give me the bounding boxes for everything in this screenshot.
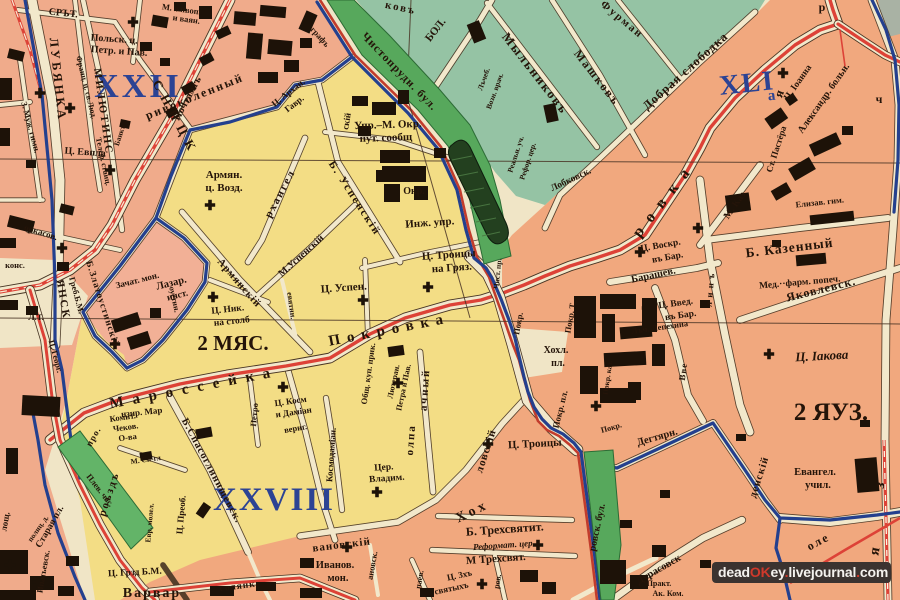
svg-text:2 МЯС.: 2 МЯС. [197, 331, 268, 355]
svg-text:Евангел.: Евангел. [794, 467, 836, 478]
svg-text:учил.: учил. [805, 480, 831, 491]
svg-text:Ак. Ком.: Ак. Ком. [652, 589, 683, 598]
svg-text:конс.: конс. [5, 260, 25, 270]
svg-text:Цер.: Цер. [374, 462, 394, 473]
svg-text:Варвар: Варвар [123, 586, 181, 600]
svg-text:Л.Т.: Л.Т. [28, 312, 43, 322]
svg-text:пут. сообщ: пут. сообщ [359, 131, 413, 145]
svg-text:мон.: мон. [328, 573, 349, 584]
svg-text:Практ.: Практ. [647, 579, 672, 588]
svg-text:Окр.: Окр. [403, 186, 425, 197]
svg-text:ч: ч [876, 92, 883, 106]
svg-text:deadOKey.livejournal.com: deadOKey.livejournal.com [718, 564, 888, 580]
svg-text:ц. Возд.: ц. Возд. [205, 182, 242, 194]
svg-text:Хохл.: Хохл. [544, 345, 569, 356]
svg-text:олпа: олпа [404, 424, 418, 456]
svg-text:р: р [819, 0, 826, 14]
svg-text:2 ЯУЗ.: 2 ЯУЗ. [794, 399, 868, 426]
svg-text:Иванов.: Иванов. [316, 560, 355, 571]
svg-text:Петро: Петро [248, 403, 260, 427]
svg-text:Армян.: Армян. [206, 169, 243, 181]
svg-text:Ц. Іакова: Ц. Іакова [794, 347, 849, 365]
svg-text:Упр.–М. Окр.: Упр.–М. Окр. [354, 118, 422, 132]
svg-text:пл.: пл. [551, 358, 565, 369]
